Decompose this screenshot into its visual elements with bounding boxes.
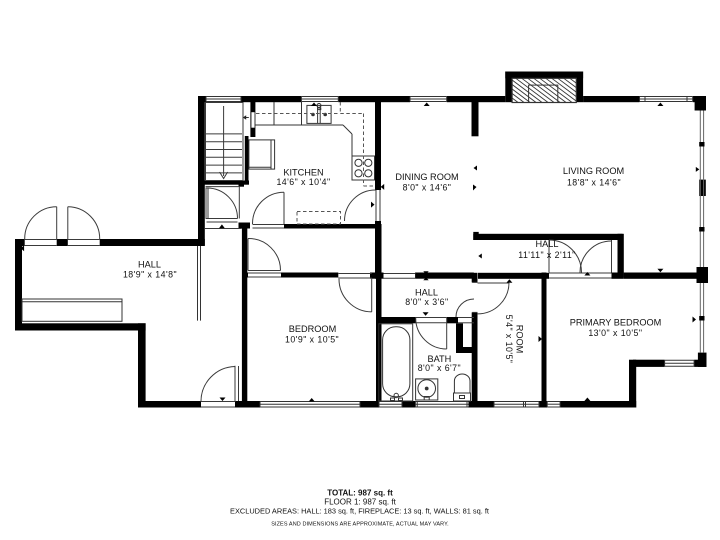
svg-text:5'4" x 10'5": 5'4" x 10'5" (504, 315, 514, 364)
svg-text:11'11" x 2'11": 11'11" x 2'11" (518, 250, 575, 260)
svg-text:ROOM: ROOM (515, 325, 525, 354)
svg-text:8'0" x 6'7": 8'0" x 6'7" (418, 363, 461, 373)
svg-text:18'8" x 14'6": 18'8" x 14'6" (567, 178, 621, 188)
svg-text:HALL: HALL (536, 239, 559, 249)
svg-text:8'0" x 14'6": 8'0" x 14'6" (403, 182, 452, 192)
svg-text:DINING ROOM: DINING ROOM (395, 172, 458, 182)
svg-text:LIVING ROOM: LIVING ROOM (563, 166, 624, 176)
svg-text:8'0" x 3'6": 8'0" x 3'6" (405, 297, 448, 307)
svg-text:14'6" x 10'4": 14'6" x 10'4" (276, 177, 330, 187)
svg-text:HALL: HALL (138, 260, 161, 270)
svg-text:BEDROOM: BEDROOM (289, 324, 336, 334)
svg-text:PRIMARY BEDROOM: PRIMARY BEDROOM (570, 317, 662, 327)
svg-text:13'0" x 10'5": 13'0" x 10'5" (588, 328, 642, 338)
svg-text:HALL: HALL (415, 287, 438, 297)
svg-text:10'9" x 10'5": 10'9" x 10'5" (285, 334, 339, 344)
svg-text:EXCLUDED AREAS: HALL: 183 sq.: EXCLUDED AREAS: HALL: 183 sq. ft, FIREPL… (230, 506, 489, 515)
svg-text:18'9" x 14'8": 18'9" x 14'8" (123, 269, 177, 279)
svg-text:TOTAL: 987 sq. ft: TOTAL: 987 sq. ft (327, 488, 393, 497)
svg-text:SIZES AND DIMENSIONS ARE APPRO: SIZES AND DIMENSIONS ARE APPROXIMATE, AC… (271, 521, 449, 527)
